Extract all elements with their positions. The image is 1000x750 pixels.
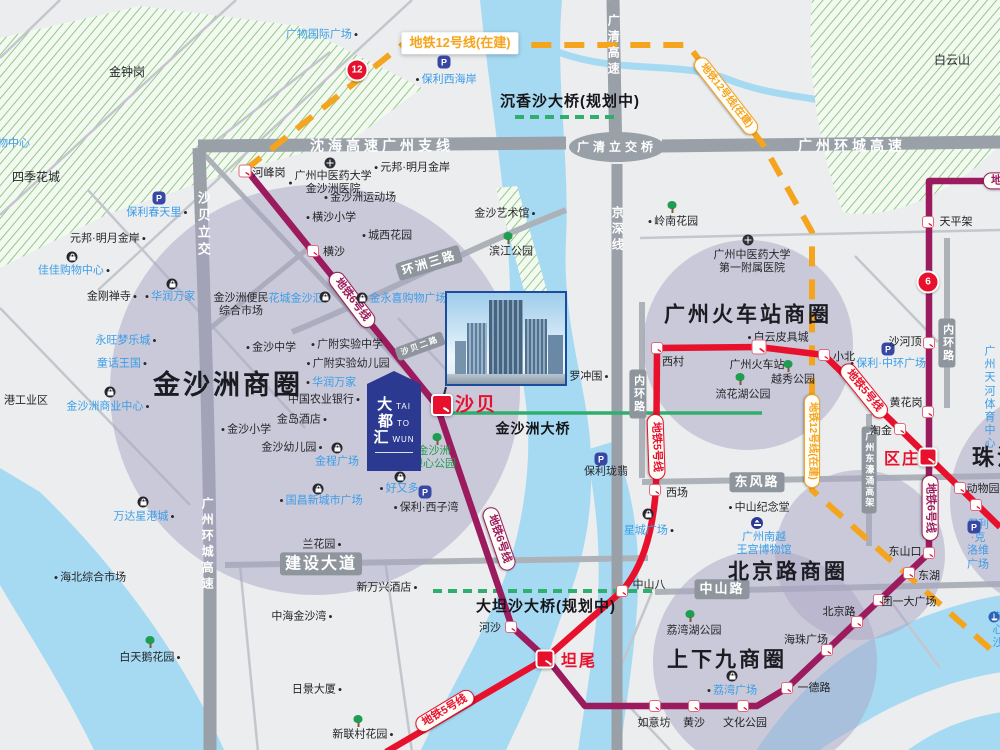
station-label: 沙河顶 (889, 333, 922, 349)
building-ground (447, 374, 565, 384)
metro-station-marker-icon (307, 245, 319, 257)
map-label: 京深线 (610, 206, 624, 254)
mall-icon (332, 443, 343, 454)
poi-dot-icon: ● (279, 498, 283, 505)
map-label: 沙贝立交 (195, 191, 211, 259)
map-label: ●元邦·明月金岸 (374, 161, 450, 174)
poi-dot-icon: ● (328, 614, 332, 621)
map-label: 花城金沙汇 (269, 292, 324, 305)
logo-tagline-rule (375, 452, 414, 455)
mall-icon (105, 387, 116, 398)
metro-station-marker-icon (688, 700, 700, 712)
map-label: 金沙艺术馆● (474, 207, 535, 220)
anchor-icon (989, 612, 1000, 623)
station-label: 区庄 (884, 445, 920, 469)
poi-dot-icon: ● (311, 342, 315, 349)
logo-cn: 都 (378, 414, 393, 430)
station-label: 沙贝 (455, 390, 497, 417)
metro-station-marker-icon (818, 349, 830, 361)
poi-dot-icon: ● (142, 236, 146, 243)
map-label: ●荔湾广场 (707, 684, 757, 697)
map-label: ●保利西海岸 (415, 73, 476, 86)
map-label: ●好又多 (379, 482, 418, 495)
map-label: 广州东濠涌高架 (862, 427, 877, 514)
station-label: 黄沙 (683, 714, 705, 730)
map-label: 沉香沙大桥(规划中) (500, 93, 640, 111)
map-label: 内环路 (938, 319, 955, 368)
poi-dot-icon: ● (170, 514, 174, 521)
map-label: 沙贝二路 (394, 331, 446, 361)
mall-icon (727, 671, 738, 682)
map-label: 地铁5号线 (412, 687, 478, 736)
poi-dot-icon: ● (54, 575, 58, 582)
poi-dot-icon: ● (106, 268, 110, 275)
poi-dot-icon: ● (728, 505, 732, 512)
map-label: 地铁5号线 (646, 414, 665, 481)
poi-dot-icon: ● (389, 732, 393, 739)
logo-row: 汇 WUN (373, 430, 414, 446)
map-label: 金沙洲便民 综合市场 (214, 292, 269, 318)
project-rendering-image (445, 291, 567, 386)
map-label: 广清立交桥 (577, 140, 657, 154)
logo-row: 都 TO (378, 414, 410, 430)
map-label: 保利珑翡 (584, 465, 628, 478)
map-label: 港工业区 (4, 394, 48, 407)
map-label: 地铁6号线 (480, 505, 518, 573)
poi-dot-icon: ● (145, 294, 149, 301)
poi-dot-icon: ● (221, 427, 225, 434)
poi-dot-icon: ● (246, 345, 250, 352)
map-label: 白天鹅花园● (119, 651, 180, 664)
map-label: 广州中医药大学 第一附属医院 (714, 249, 791, 275)
tai-to-wun-logo: 大 TAI 都 TO 汇 WUN (367, 371, 421, 471)
map-label: ●金沙小学 (221, 423, 271, 436)
station-label: 团一大广场 (882, 593, 937, 609)
map-label: ●横沙小学 (306, 211, 356, 224)
poi-dot-icon: ● (152, 338, 156, 345)
poly-icon: P (153, 192, 166, 205)
map-label: 建设大道 (280, 552, 362, 575)
map-label: 地铁12号线(在建) (804, 394, 820, 488)
map-label: 新联村花园● (332, 728, 393, 741)
poi-dot-icon: ● (143, 361, 147, 368)
station-label: 中山八 (633, 576, 666, 592)
tree-icon (685, 610, 696, 622)
station-label: 北京路 (823, 603, 856, 619)
hosp-icon (325, 158, 336, 169)
map-label: 北京路商圈 (728, 559, 848, 584)
poi-dot-icon: ● (323, 417, 327, 424)
poi-dot-icon: ● (604, 374, 608, 381)
metro-station-marker-icon (536, 650, 555, 669)
station-label: 海珠广场 (784, 631, 828, 647)
map-label: 金永喜购物广场 (370, 292, 447, 305)
map-label: ●广附实验中学 (311, 338, 383, 351)
station-label: 河沙 (479, 619, 501, 635)
transit-location-map: 大 TAI 都 TO 汇 WUN 金钟岗四季花城购物中心元邦·明月金岸●佳佳购物… (0, 0, 1000, 750)
map-label: 金沙洲商圈 (153, 369, 303, 401)
metro-line-number-badge: 6 (917, 271, 940, 294)
map-label: 金刚禅寺● (87, 290, 137, 303)
map-label: 地铁6号线 (921, 475, 938, 541)
metro-station-marker-icon (894, 423, 906, 435)
logo-row: 大 TAI (377, 397, 411, 413)
poi-dot-icon: ● (394, 505, 398, 512)
map-label: 罗冲围● (569, 370, 608, 383)
logo-en: WUN (392, 436, 414, 444)
station-label: 西场 (666, 484, 688, 500)
metro-station-marker-icon (752, 340, 767, 355)
poi-dot-icon: ● (306, 380, 310, 387)
station-label: 广州火车站 (730, 356, 785, 372)
poi-dot-icon: ● (183, 210, 187, 217)
map-label: 童话王国● (97, 357, 147, 370)
poi-dot-icon: ● (379, 486, 383, 493)
poi-dot-icon: ● (306, 215, 310, 222)
map-label: ●华润万家 (145, 290, 195, 303)
metro-station-marker-icon (616, 585, 628, 597)
metro-station-marker-icon (919, 448, 938, 467)
map-label: ●城西花园 (362, 229, 412, 242)
map-label: ●金沙中学 (246, 341, 296, 354)
metro-station-marker-icon (737, 700, 749, 712)
building-shape (525, 319, 547, 378)
map-label: 金程广场 (315, 455, 359, 468)
tree-icon (735, 373, 746, 385)
map-label: 广州南越 王宫博物馆 (737, 531, 792, 557)
map-label: 沈海高速广州支线 (310, 138, 454, 155)
poi-dot-icon: ● (354, 32, 358, 39)
building-shape (489, 300, 523, 378)
map-label: 广物国际广场● (286, 28, 358, 41)
poi-dot-icon: ● (318, 445, 322, 452)
poi-dot-icon: ● (338, 687, 342, 694)
mall-icon (167, 279, 178, 290)
logo-en: TAI (396, 403, 411, 411)
mus-icon (751, 517, 763, 529)
map-label: 保利春天里● (126, 206, 187, 219)
building-shape (467, 323, 487, 378)
metro-station-marker-icon (923, 547, 935, 559)
map-label: 万达星港城● (113, 510, 174, 523)
mall-icon (395, 472, 406, 483)
map-label: ●岭南花园 (648, 215, 698, 228)
map-label: 金岛酒店● (277, 413, 327, 426)
poly-icon: P (419, 486, 432, 499)
logo-en: TO (397, 420, 410, 428)
map-label: 越秀公园 (771, 373, 815, 386)
map-label: 广州天河 体育中心 (985, 345, 996, 451)
station-label: 西村 (662, 353, 684, 369)
metro-station-marker-icon (431, 394, 453, 416)
station-label: 黄花岗 (890, 394, 923, 410)
poly-icon: P (438, 56, 451, 69)
station-label: 河峰岗 (253, 164, 286, 180)
map-label: 佳佳购物中心● (38, 264, 110, 277)
metro-station-marker-icon (954, 482, 966, 494)
map-label: 金沙洲大桥 (496, 421, 571, 438)
map-label: 金钟岗 (109, 65, 145, 79)
poi-dot-icon: ● (362, 233, 366, 240)
map-label: 白云山 (934, 53, 970, 67)
station-label: 横沙 (323, 243, 345, 259)
metro-station-marker-icon (923, 337, 935, 349)
map-label: 地铁6号线 (983, 172, 1000, 189)
map-label: 广州环城高速 (798, 138, 906, 155)
map-label: 购物中心 (0, 137, 30, 150)
metro-line-number-badge: 12 (346, 59, 369, 82)
map-label: ●海北综合市场 (54, 571, 126, 584)
map-label: 日景大厦● (292, 683, 342, 696)
station-label: 动物园 (967, 480, 1000, 496)
map-label: 流花湖公园 (716, 388, 771, 401)
map-label: 广州环城高速 (200, 497, 214, 593)
map-label: ●保利·中环广场 (850, 357, 926, 370)
map-label: 上下九商圈 (667, 647, 787, 672)
map-label: 元邦·明月金岸● (70, 232, 146, 245)
map-label: 滨江公园 (489, 245, 533, 258)
station-label: 如意坊 (638, 714, 671, 730)
map-label: ●华润万家 (306, 376, 356, 389)
poi-dot-icon: ● (145, 404, 149, 411)
mall-icon (320, 292, 331, 303)
station-label: 天平架 (940, 213, 973, 229)
map-label: 内环路 (629, 370, 646, 419)
poi-dot-icon: ● (356, 397, 360, 404)
mall-icon (138, 497, 149, 508)
map-label: 珠江新城 (972, 445, 1000, 471)
mall-icon (313, 484, 324, 495)
metro-station-marker-icon (781, 682, 793, 694)
station-label: 东山口 (889, 543, 922, 559)
hosp-icon (743, 235, 754, 246)
map-label: 兰花园● (302, 538, 341, 551)
map-label: ●广州中医药大学 金沙洲医院 (288, 170, 371, 196)
map-label: ●中山纪念堂 (728, 501, 789, 514)
map-label: 星城广场● (624, 524, 674, 537)
map-label: 广清高速 (606, 14, 620, 78)
poi-dot-icon: ● (707, 688, 711, 695)
logo-cn: 大 (377, 397, 392, 413)
poi-dot-icon: ● (374, 165, 378, 172)
poi-dot-icon: ● (288, 180, 292, 187)
map-label: 环洲三路 (395, 245, 464, 282)
metro-station-marker-icon (239, 165, 252, 178)
map-label: 广州火车站商圈 (664, 302, 832, 327)
station-label: 一德路 (798, 679, 831, 695)
map-label: 金沙幼儿园● (261, 441, 322, 454)
logo-cn: 汇 (373, 430, 388, 446)
map-label: 荔湾湖公园 (667, 624, 722, 637)
mall-icon (357, 293, 368, 304)
poi-dot-icon: ● (413, 585, 417, 592)
map-label: 东风路 (729, 472, 784, 492)
map-label: 金沙洲商业中心● (66, 400, 149, 413)
station-label: 小北 (833, 348, 855, 364)
poi-dot-icon: ● (337, 542, 341, 549)
tree-icon (503, 232, 514, 244)
poly-icon: P (595, 453, 608, 466)
map-label: ●保利·西子湾 (394, 501, 459, 514)
metro-station-marker-icon (903, 567, 915, 579)
tree-icon (353, 715, 364, 727)
poi-dot-icon: ● (133, 294, 137, 301)
metro-station-marker-icon (649, 700, 661, 712)
metro-station-marker-icon (970, 499, 982, 511)
tree-icon (667, 201, 678, 213)
map-label: ●国昌新城市广场 (279, 494, 362, 507)
map-label: 四季花城 (12, 170, 60, 184)
building-shape (548, 335, 563, 378)
metro-station-marker-icon (649, 484, 661, 496)
map-label: 永旺梦乐城● (95, 334, 156, 347)
poi-dot-icon: ● (306, 361, 310, 368)
map-label: 大坦沙大桥(规划中) (476, 598, 616, 616)
mall-icon (643, 509, 654, 520)
poi-dot-icon: ● (176, 655, 180, 662)
tree-icon (432, 433, 443, 445)
building-shape (455, 341, 466, 378)
tree-icon (145, 636, 156, 648)
map-label: 新万兴酒店● (356, 581, 417, 594)
poi-dot-icon: ● (648, 219, 652, 226)
station-label: 淘金 (870, 422, 892, 438)
metro-station-marker-icon (922, 216, 934, 228)
map-label: 中海金沙湾● (271, 610, 332, 623)
poly-icon: P (968, 521, 981, 534)
mall-icon (67, 252, 78, 263)
poi-dot-icon: ● (670, 528, 674, 535)
poi-dot-icon: ● (415, 77, 419, 84)
metro-station-marker-icon (922, 406, 934, 418)
station-label: 文化公园 (723, 714, 767, 730)
station-label: 东湖 (918, 567, 940, 583)
metro-station-marker-icon (505, 621, 517, 633)
map-label: ●广附实验幼儿园 (306, 357, 389, 370)
station-label: 坦尾 (561, 647, 597, 671)
map-label: 地铁12号线(在建) (691, 54, 761, 138)
map-label: 地铁12号线(在建) (401, 32, 518, 54)
poi-dot-icon: ● (531, 211, 535, 218)
